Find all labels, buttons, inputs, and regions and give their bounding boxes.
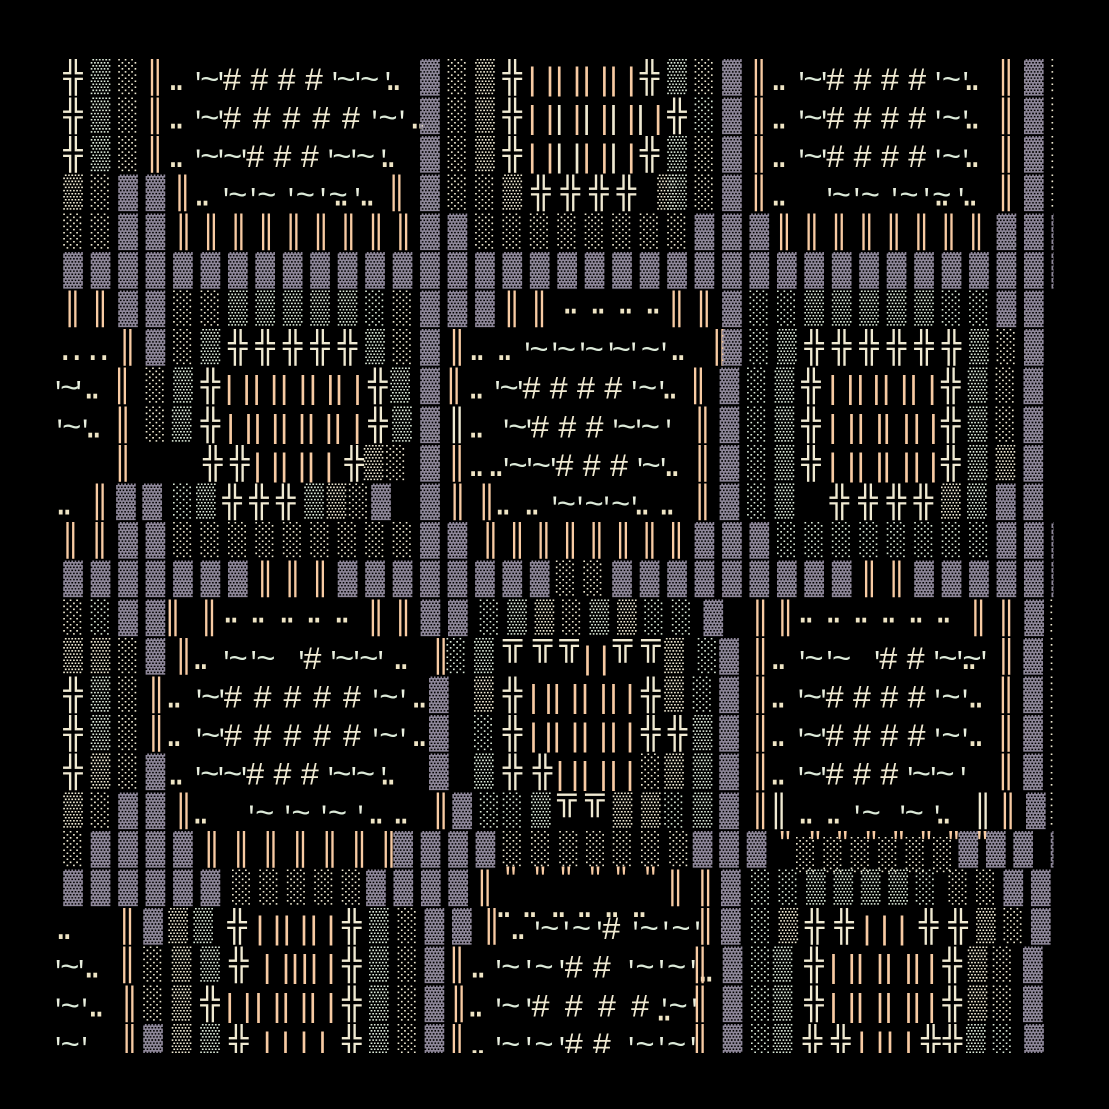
- svg-text:▓: ▓: [557, 251, 577, 289]
- svg-text:|: |: [904, 372, 924, 409]
- svg-text:░: ░: [314, 869, 334, 907]
- svg-text:░: ░: [976, 869, 996, 907]
- svg-text:▒: ▒: [390, 367, 410, 405]
- svg-text:.: .: [772, 719, 792, 756]
- svg-text:░: ░: [393, 290, 413, 328]
- svg-text:║: ║: [690, 984, 710, 1022]
- svg-text:▓: ▓: [1024, 290, 1044, 328]
- svg-text:▓: ▓: [1026, 791, 1046, 829]
- svg-text:▓: ▓: [503, 560, 523, 598]
- svg-text:#: #: [222, 63, 242, 100]
- svg-text:▓: ▓: [173, 869, 193, 907]
- svg-text:║: ║: [534, 521, 554, 559]
- svg-text:#: #: [252, 102, 272, 139]
- svg-text:░: ░: [695, 135, 715, 173]
- svg-text:#: #: [253, 681, 273, 718]
- svg-text:░: ░: [91, 174, 111, 212]
- svg-text:#: #: [555, 449, 575, 486]
- svg-text:╬: ╬: [309, 328, 330, 366]
- svg-text:▓: ▓: [118, 290, 138, 328]
- svg-text:▓: ▓: [63, 560, 83, 598]
- svg-text:▓: ▓: [146, 174, 166, 212]
- svg-text:.: .: [225, 595, 245, 632]
- svg-text:#: #: [549, 372, 569, 409]
- svg-text:▒: ▒: [304, 483, 324, 521]
- svg-text:#: #: [908, 63, 928, 100]
- svg-text:|: |: [823, 410, 843, 447]
- svg-text:║: ║: [311, 212, 331, 250]
- svg-text:╬: ╬: [62, 97, 83, 135]
- svg-text:▓: ▓: [452, 791, 472, 829]
- svg-text:#: #: [282, 102, 302, 139]
- svg-text:.: .: [910, 595, 930, 632]
- svg-text:~: ~: [328, 796, 348, 833]
- svg-text:▓: ▓: [421, 598, 441, 636]
- svg-text:║: ║: [769, 791, 789, 829]
- svg-text:░: ░: [997, 328, 1017, 366]
- svg-text:▓: ▓: [997, 290, 1017, 328]
- svg-text:║: ║: [774, 212, 794, 250]
- svg-text:▒: ▒: [91, 97, 111, 135]
- svg-text:▒: ▒: [91, 714, 111, 752]
- svg-text:▓: ▓: [693, 830, 713, 868]
- svg-text:#: #: [246, 758, 266, 795]
- svg-text:▓: ▓: [942, 251, 962, 289]
- svg-text:#: #: [300, 140, 320, 177]
- svg-text:#: #: [880, 140, 900, 177]
- svg-text:▓: ▓: [695, 521, 715, 559]
- svg-text:╬: ╬: [616, 174, 637, 212]
- svg-text:░: ░: [996, 405, 1016, 443]
- svg-text:░: ░: [664, 791, 684, 829]
- svg-text:╦: ╦: [640, 626, 661, 663]
- svg-text:║: ║: [996, 714, 1016, 752]
- svg-text:|: |: [620, 719, 640, 756]
- svg-text:|: |: [274, 449, 294, 486]
- svg-text:▒: ▒: [693, 791, 713, 829]
- svg-text:#: #: [825, 681, 845, 718]
- svg-text:║: ║: [349, 830, 369, 868]
- svg-text:|: |: [604, 140, 624, 177]
- svg-text:|: |: [595, 642, 615, 679]
- svg-text:▒: ▒: [200, 946, 220, 984]
- svg-text:▓: ▓: [1023, 753, 1043, 791]
- svg-text:▓: ▓: [1031, 907, 1051, 945]
- svg-text:║: ║: [145, 97, 165, 135]
- svg-text:|: |: [301, 449, 321, 486]
- svg-text:.: .: [882, 595, 902, 632]
- svg-text:▒: ▒: [475, 97, 495, 135]
- svg-text:#: #: [879, 642, 899, 679]
- svg-text:▓: ▓: [997, 212, 1017, 250]
- svg-text:": ": [613, 864, 629, 894]
- svg-text:|: |: [523, 102, 543, 139]
- svg-text:▓: ▓: [1024, 521, 1044, 559]
- svg-text:.: .: [168, 681, 188, 718]
- svg-text:║: ║: [202, 830, 222, 868]
- svg-text:▓: ▓: [719, 830, 739, 868]
- svg-text:▒: ▒: [969, 328, 989, 366]
- svg-text:~: ~: [255, 796, 275, 833]
- svg-text:║: ║: [998, 791, 1018, 829]
- svg-text:╦: ╦: [558, 626, 579, 663]
- svg-text:▓: ▓: [997, 560, 1017, 598]
- svg-text:░: ░: [747, 367, 767, 405]
- svg-text:║: ║: [857, 212, 877, 250]
- svg-text:#: #: [558, 410, 578, 447]
- svg-text:#: #: [585, 410, 605, 447]
- svg-text:▓: ▓: [1024, 483, 1044, 521]
- svg-text:▒: ▒: [859, 290, 879, 328]
- svg-text:║: ║: [997, 598, 1017, 636]
- svg-text:.: .: [95, 333, 115, 370]
- svg-text:▓: ▓: [420, 58, 440, 96]
- svg-text:▓: ▓: [695, 251, 715, 289]
- svg-text:|: |: [922, 951, 942, 988]
- svg-text:▓: ▓: [859, 251, 879, 289]
- svg-text:.: .: [170, 140, 190, 177]
- svg-text:▓: ▓: [720, 405, 740, 443]
- svg-text:╬: ╬: [200, 405, 221, 443]
- svg-text:░: ░: [750, 328, 770, 366]
- svg-text:.: .: [636, 488, 656, 525]
- svg-text:|: |: [892, 912, 912, 949]
- svg-text:|: |: [850, 951, 870, 988]
- svg-text:░: ░: [480, 598, 500, 636]
- svg-text:.: .: [86, 951, 106, 988]
- svg-text:▓: ▓: [997, 251, 1017, 289]
- svg-text:▓: ▓: [612, 251, 632, 289]
- svg-text:~: ~: [501, 989, 521, 1026]
- svg-text:▓: ▓: [425, 946, 445, 984]
- svg-text:▓: ▓: [722, 290, 742, 328]
- svg-text:▓: ▓: [695, 560, 715, 598]
- svg-text:.: .: [773, 63, 793, 100]
- svg-text:~: ~: [572, 912, 592, 949]
- svg-text:▓: ▓: [146, 830, 166, 868]
- svg-text:▓: ▓: [914, 251, 934, 289]
- svg-text:': ': [956, 764, 972, 794]
- svg-text:▓: ▓: [1024, 598, 1044, 636]
- svg-text:╬: ╬: [228, 946, 249, 984]
- svg-text:▓: ▓: [91, 560, 111, 598]
- svg-text:#: #: [312, 102, 332, 139]
- svg-text:▓: ▓: [1024, 405, 1044, 443]
- svg-text:▒: ▒: [664, 637, 684, 675]
- svg-text:#: #: [222, 102, 242, 139]
- svg-text:░: ░: [475, 174, 495, 212]
- svg-text:╬: ╬: [886, 483, 907, 521]
- svg-text:▓: ▓: [1004, 869, 1024, 907]
- svg-text:░: ░: [228, 521, 248, 559]
- svg-text:▓: ▓: [721, 869, 741, 907]
- svg-text:▒: ▒: [172, 405, 192, 443]
- svg-text:▓: ▓: [959, 830, 979, 868]
- svg-text:╬: ╬: [344, 444, 365, 482]
- svg-text:╬: ╬: [341, 984, 362, 1022]
- svg-text:.: .: [663, 372, 683, 409]
- svg-text:╬: ╬: [199, 984, 220, 1022]
- svg-text:║: ║: [447, 946, 467, 984]
- svg-text:#: #: [582, 449, 602, 486]
- svg-text:▓: ▓: [1023, 714, 1043, 752]
- svg-text:░: ░: [777, 290, 797, 328]
- svg-text:║: ║: [587, 521, 607, 559]
- svg-text:▓: ▓: [452, 907, 472, 945]
- svg-text:║: ║: [120, 984, 140, 1022]
- svg-text:▓: ▓: [804, 251, 824, 289]
- svg-text:║: ║: [996, 676, 1016, 714]
- svg-text:╬: ╬: [337, 328, 358, 366]
- svg-text:║: ║: [887, 560, 907, 598]
- svg-text:░: ░: [695, 97, 715, 135]
- svg-text:|: |: [823, 372, 843, 409]
- svg-text:▓: ▓: [1023, 676, 1043, 714]
- svg-text:|: |: [922, 989, 942, 1026]
- svg-text:╬: ╬: [367, 405, 388, 443]
- svg-text:║: ║: [829, 212, 849, 250]
- svg-text:▓: ▓: [91, 869, 111, 907]
- svg-text:░: ░: [342, 869, 362, 907]
- svg-text:▒: ▒: [775, 483, 795, 521]
- svg-text:░: ░: [146, 367, 166, 405]
- svg-text:░: ░: [583, 560, 603, 598]
- svg-text:|: |: [303, 989, 323, 1026]
- svg-text:▒: ▒: [775, 405, 795, 443]
- svg-text:▓: ▓: [887, 251, 907, 289]
- svg-text:|: |: [328, 410, 348, 447]
- svg-text:▓: ▓: [722, 97, 742, 135]
- svg-text:║: ║: [693, 444, 713, 482]
- svg-text:░: ░: [287, 869, 307, 907]
- svg-text:▒: ▒: [255, 290, 275, 328]
- svg-text:#: #: [522, 372, 542, 409]
- svg-text:|: |: [622, 63, 642, 100]
- svg-text:▓: ▓: [1024, 328, 1044, 366]
- svg-text:#: #: [825, 758, 845, 795]
- svg-text:▓: ▓: [420, 174, 440, 212]
- svg-text:.: .: [382, 140, 402, 177]
- svg-text:║: ║: [112, 367, 132, 405]
- svg-text:~: ~: [540, 912, 560, 949]
- svg-text:~: ~: [635, 951, 655, 988]
- svg-text:": ": [587, 864, 603, 894]
- svg-text:╬: ╬: [858, 328, 879, 366]
- svg-text:░: ░: [531, 830, 551, 868]
- svg-text:|: |: [604, 102, 624, 139]
- svg-text:#: #: [273, 140, 293, 177]
- svg-text:#: #: [342, 681, 362, 718]
- svg-text:░: ░: [310, 521, 330, 559]
- svg-text:▒: ▒: [613, 791, 633, 829]
- svg-text:▓: ▓: [695, 212, 715, 250]
- svg-text:▓: ▓: [722, 174, 742, 212]
- svg-text:░: ░: [118, 637, 138, 675]
- svg-text:░: ░: [448, 174, 468, 212]
- svg-text:╬: ╬: [502, 58, 523, 96]
- svg-text:║: ║: [696, 869, 716, 907]
- svg-text:~: ~: [671, 912, 691, 949]
- svg-text:▓: ▓: [146, 791, 166, 829]
- svg-text:░: ░: [969, 521, 989, 559]
- svg-text:.: .: [472, 951, 492, 988]
- svg-text:▓: ▓: [63, 869, 83, 907]
- svg-text:.: .: [592, 287, 612, 324]
- svg-text:▓: ▓: [1024, 444, 1044, 482]
- svg-text:╦: ╦: [556, 780, 577, 817]
- svg-text:░: ░: [398, 946, 418, 984]
- svg-text:╬: ╬: [62, 714, 83, 752]
- svg-text:▒: ▒: [773, 984, 793, 1022]
- svg-text:░: ░: [805, 521, 825, 559]
- svg-text:▓: ▓: [420, 521, 440, 559]
- svg-text:': ': [626, 339, 642, 369]
- svg-text:░: ░: [878, 836, 898, 874]
- svg-text:.: .: [773, 179, 793, 216]
- svg-text:|: |: [276, 989, 296, 1026]
- svg-text:▓: ▓: [118, 869, 138, 907]
- svg-text:░: ░: [398, 907, 418, 945]
- svg-text:|: |: [523, 63, 543, 100]
- svg-text:.: .: [194, 796, 214, 833]
- svg-text:|: |: [823, 449, 843, 486]
- svg-text:▓: ▓: [750, 560, 770, 598]
- svg-text:░: ░: [612, 212, 632, 250]
- svg-text:╬: ╬: [639, 135, 660, 173]
- svg-text:.: .: [658, 993, 678, 1030]
- svg-text:.: .: [336, 595, 356, 632]
- svg-text:▒: ▒: [888, 869, 908, 907]
- svg-text:~: ~: [529, 333, 549, 370]
- svg-text:|: |: [221, 410, 241, 447]
- svg-text:▓: ▓: [118, 174, 138, 212]
- svg-text:▓: ▓: [832, 560, 852, 598]
- svg-text:": ": [777, 828, 793, 858]
- svg-text:.: .: [382, 758, 402, 795]
- svg-text:▓: ▓: [421, 869, 441, 907]
- svg-text:#: #: [853, 63, 873, 100]
- svg-text:▓: ▓: [777, 560, 797, 598]
- svg-text:░: ░: [143, 984, 163, 1022]
- svg-text:▒: ▒: [775, 367, 795, 405]
- svg-text:║: ║: [996, 753, 1016, 791]
- svg-text:▓: ▓: [1024, 212, 1044, 250]
- svg-text:.: .: [387, 63, 407, 100]
- svg-text:║: ║: [666, 521, 686, 559]
- svg-text:╦: ╦: [502, 626, 523, 663]
- svg-text:|: |: [824, 989, 844, 1026]
- svg-text:▓: ▓: [475, 560, 495, 598]
- svg-text:▓: ▓: [118, 791, 138, 829]
- svg-text:.: .: [963, 179, 983, 216]
- svg-text:░: ░: [751, 946, 771, 984]
- svg-text:▓: ▓: [719, 791, 739, 829]
- svg-text:║: ║: [145, 135, 165, 173]
- svg-text:╬: ╬: [947, 907, 968, 945]
- svg-text:░: ░: [63, 598, 83, 636]
- svg-text:║: ║: [939, 212, 959, 250]
- svg-text:#: #: [880, 681, 900, 718]
- svg-text:▓: ▓: [393, 560, 413, 598]
- svg-text:╬: ╬: [940, 405, 961, 443]
- svg-text:▓: ▓: [1024, 560, 1044, 598]
- svg-text:╬: ╬: [804, 907, 825, 945]
- svg-text:▒: ▒: [693, 714, 713, 752]
- svg-text:░: ░: [91, 212, 111, 250]
- svg-text:▓: ▓: [476, 830, 496, 868]
- svg-text:░: ░: [118, 58, 138, 96]
- svg-text:╬: ╬: [803, 946, 824, 984]
- svg-text:░: ░: [386, 444, 406, 482]
- svg-text:▓: ▓: [394, 869, 414, 907]
- svg-text:░: ░: [447, 637, 467, 675]
- svg-text:|: |: [274, 372, 294, 409]
- svg-text:░: ░: [63, 830, 83, 868]
- svg-text:▓: ▓: [448, 212, 468, 250]
- svg-text:▓: ▓: [640, 251, 660, 289]
- svg-text:░: ░: [698, 637, 718, 675]
- svg-text:░: ░: [173, 483, 193, 521]
- svg-text:▒: ▒: [474, 676, 494, 714]
- svg-text:╬: ╬: [226, 907, 247, 945]
- svg-text:~: ~: [501, 951, 521, 988]
- svg-text:▓: ▓: [118, 598, 138, 636]
- svg-text:║: ║: [90, 290, 110, 328]
- svg-text:~: ~: [899, 179, 919, 216]
- svg-text:▓: ▓: [1024, 174, 1044, 212]
- svg-text:╬: ╬: [62, 135, 83, 173]
- svg-text:║: ║: [688, 367, 708, 405]
- svg-text:╬: ╬: [940, 367, 961, 405]
- svg-text:╬: ╬: [803, 328, 824, 366]
- svg-text:░: ░: [118, 714, 138, 752]
- svg-text:░: ░: [796, 836, 816, 874]
- svg-text:▒: ▒: [338, 290, 358, 328]
- svg-text:░: ░: [640, 212, 660, 250]
- svg-text:░: ░: [475, 212, 495, 250]
- svg-text:.: .: [370, 796, 390, 833]
- svg-text:▓: ▓: [722, 328, 742, 366]
- svg-text:|: |: [257, 951, 277, 988]
- svg-text:░: ░: [942, 290, 962, 328]
- svg-text:▓: ▓: [146, 637, 166, 675]
- svg-text:║: ║: [690, 946, 710, 984]
- svg-text:╬: ╬: [640, 676, 661, 714]
- svg-text:║: ║: [63, 290, 83, 328]
- svg-text:#: #: [342, 719, 362, 756]
- svg-text:▓: ▓: [116, 483, 136, 521]
- svg-text:.: .: [963, 642, 983, 679]
- svg-text:░: ░: [338, 521, 358, 559]
- svg-text:║: ║: [802, 212, 822, 250]
- svg-text:.: .: [827, 595, 847, 632]
- svg-text:|: |: [248, 410, 268, 447]
- svg-text:|: |: [877, 410, 897, 447]
- svg-text:░: ░: [283, 521, 303, 559]
- svg-text:▓: ▓: [173, 830, 193, 868]
- svg-text:.: .: [966, 102, 986, 139]
- svg-text:║: ║: [90, 483, 110, 521]
- svg-text:.: .: [619, 287, 639, 324]
- svg-text:▒: ▒: [201, 328, 221, 366]
- svg-text:▓: ▓: [986, 830, 1006, 868]
- svg-text:.: .: [469, 989, 489, 1026]
- svg-text:▒: ▒: [172, 984, 192, 1022]
- svg-text:▒: ▒: [531, 791, 551, 829]
- svg-text:#: #: [906, 642, 926, 679]
- svg-text:╬: ╬: [831, 328, 852, 366]
- svg-text:▓: ▓: [612, 560, 632, 598]
